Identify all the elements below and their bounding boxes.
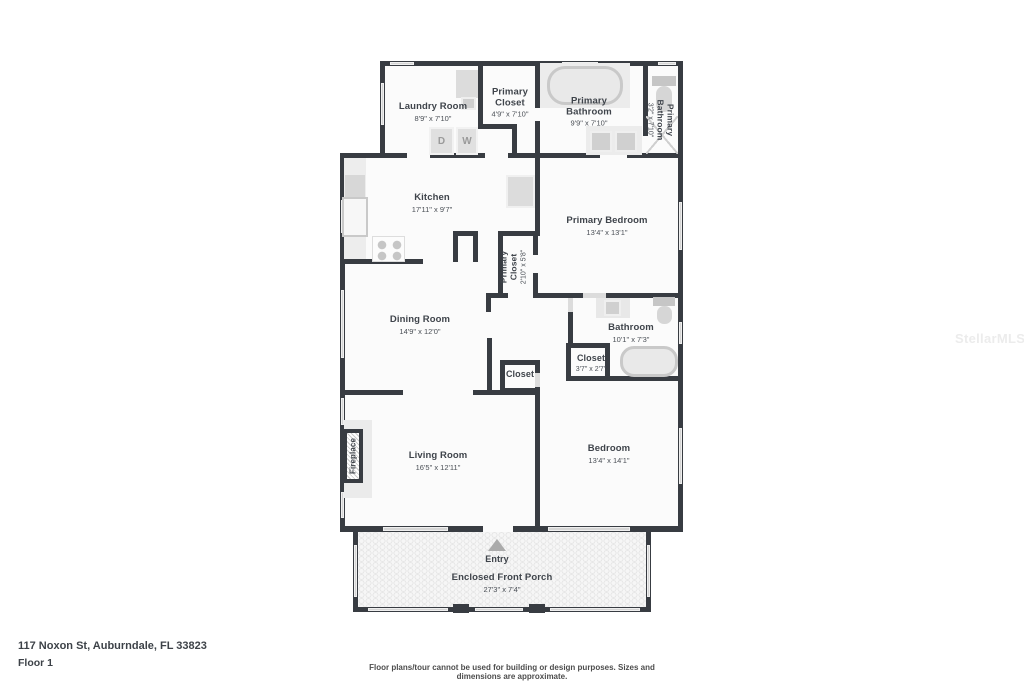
address-text: 117 Noxon St, Auburndale, FL 33823 bbox=[18, 640, 207, 652]
wall bbox=[453, 604, 469, 613]
kitchen-name: Kitchen bbox=[412, 193, 453, 204]
window bbox=[550, 608, 640, 611]
wall bbox=[343, 390, 403, 395]
wall bbox=[533, 236, 538, 255]
laundry-name: Laundry Room bbox=[399, 102, 467, 113]
closet-bath-name: Closet bbox=[576, 353, 607, 364]
wall bbox=[535, 153, 540, 233]
stove-icon bbox=[372, 236, 405, 262]
room-label-bedroom: Bedroom 13'4" x 14'1" bbox=[588, 444, 630, 465]
closet-hall-name: Closet bbox=[506, 369, 534, 380]
washer-label: W bbox=[462, 136, 471, 147]
primary-bedroom-dims: 13'4" x 13'1" bbox=[566, 227, 647, 236]
kitchen-sink-icon bbox=[342, 197, 368, 237]
entry-arrow-icon bbox=[488, 539, 506, 551]
dining-dims: 14'9" x 12'0" bbox=[390, 326, 450, 335]
window bbox=[548, 527, 630, 531]
wall bbox=[529, 604, 545, 613]
bath-tub-icon bbox=[620, 346, 678, 377]
window bbox=[390, 62, 414, 65]
room-label-primary-bathroom: Primary Bathroom 9'9" x 7'10" bbox=[561, 97, 617, 128]
dryer-icon: D bbox=[429, 127, 454, 155]
fireplace-name: Fireplace bbox=[348, 438, 358, 474]
room-label-primary-bedroom: Primary Bedroom 13'4" x 13'1" bbox=[566, 216, 647, 237]
room-label-primary-closet: Primary Closet 4'9" x 7'10" bbox=[484, 88, 536, 119]
primary-sink-1-icon bbox=[590, 131, 612, 152]
kitchen-prep-sink-icon bbox=[345, 175, 365, 197]
wall bbox=[535, 387, 540, 526]
window bbox=[341, 290, 344, 358]
window bbox=[475, 608, 523, 611]
primary-wc-dims: 3'2" x 7'10" bbox=[646, 92, 655, 148]
wall bbox=[500, 360, 540, 365]
kitchen-dims: 17'11" x 9'7" bbox=[412, 204, 453, 213]
room-label-kitchen: Kitchen 17'11" x 9'7" bbox=[412, 193, 453, 214]
hall-primary-closet-dims: 2'10" x 5'8" bbox=[520, 243, 529, 291]
living-name: Living Room bbox=[409, 451, 468, 462]
wall bbox=[487, 338, 492, 393]
wall bbox=[473, 390, 537, 395]
porch-name: Enclosed Front Porch bbox=[452, 573, 553, 584]
window bbox=[679, 202, 682, 250]
bedroom-dims: 13'4" x 14'1" bbox=[588, 455, 630, 464]
entry-doorway bbox=[483, 526, 513, 532]
fireplace-label: Fireplace bbox=[348, 438, 358, 474]
primary-wc-name: Primary Bathroom bbox=[656, 92, 675, 148]
closet-bath-dims: 3'7" x 2'7" bbox=[576, 364, 607, 373]
laundry-dims: 8'9" x 7'10" bbox=[399, 113, 467, 122]
room-label-hall-primary-closet: Primary Closet 2'10" x 5'8" bbox=[500, 243, 529, 291]
wc-toilet-tank-icon bbox=[652, 76, 676, 86]
window bbox=[354, 545, 357, 597]
wall bbox=[478, 61, 483, 127]
wall bbox=[453, 236, 458, 262]
room-label-closet-hall: Closet bbox=[506, 369, 534, 380]
floor-plan: D W Fireplace Laundry Room 8'9" x 7'10" … bbox=[0, 0, 1024, 682]
primary-sink-2-icon bbox=[615, 131, 637, 152]
bathroom-name: Bathroom bbox=[608, 323, 654, 334]
bath-toilet-bowl-icon bbox=[657, 306, 672, 324]
wall bbox=[568, 312, 573, 345]
porch-dims: 27'3" x 7'4" bbox=[452, 584, 553, 593]
primary-closet-dims: 4'9" x 7'10" bbox=[484, 110, 536, 119]
primary-closet-name: Primary Closet bbox=[484, 88, 536, 109]
bath-toilet-tank-icon bbox=[653, 297, 675, 306]
bathroom-dims: 10'1" x 7'3" bbox=[608, 334, 654, 343]
room-label-bathroom: Bathroom 10'1" x 7'3" bbox=[608, 323, 654, 344]
room-label-closet-bath: Closet 3'7" x 2'7" bbox=[576, 353, 607, 374]
wall bbox=[380, 61, 683, 66]
laundry-shelf-icon bbox=[456, 70, 478, 98]
living-dims: 16'5" x 12'11" bbox=[409, 462, 468, 471]
dryer-label: D bbox=[438, 136, 445, 147]
room-label-laundry: Laundry Room 8'9" x 7'10" bbox=[399, 102, 467, 123]
bath-sink-icon bbox=[604, 300, 621, 316]
disclaimer-text: Floor plans/tour cannot be used for buil… bbox=[352, 663, 672, 681]
door-opening bbox=[535, 373, 540, 387]
window bbox=[368, 608, 448, 611]
room-label-dining: Dining Room 14'9" x 12'0" bbox=[390, 315, 450, 336]
room-label-primary-wc: Primary Bathroom 3'2" x 7'10" bbox=[646, 92, 675, 148]
window bbox=[647, 545, 650, 597]
room-label-living: Living Room 16'5" x 12'11" bbox=[409, 451, 468, 472]
window bbox=[383, 527, 448, 531]
floor-label: Floor 1 bbox=[18, 657, 53, 669]
window bbox=[679, 428, 682, 484]
window bbox=[679, 322, 682, 344]
room-label-porch: Enclosed Front Porch 27'3" x 7'4" bbox=[452, 573, 553, 594]
washer-icon: W bbox=[456, 127, 478, 155]
hall-primary-closet-name: Primary Closet bbox=[500, 243, 519, 291]
window bbox=[658, 62, 676, 65]
mls-watermark: StellarMLS bbox=[955, 331, 1024, 346]
wall bbox=[533, 293, 583, 298]
wall bbox=[380, 153, 407, 158]
wall bbox=[473, 236, 478, 262]
primary-bathroom-name: Primary Bathroom bbox=[561, 97, 617, 118]
entry-name: Entry bbox=[485, 554, 509, 565]
fridge-icon bbox=[506, 175, 535, 208]
door-opening bbox=[568, 298, 573, 312]
bedroom-name: Bedroom bbox=[588, 444, 630, 455]
primary-bedroom-name: Primary Bedroom bbox=[566, 216, 647, 227]
room-label-entry: Entry bbox=[485, 554, 509, 565]
wall bbox=[566, 343, 610, 348]
primary-bathroom-dims: 9'9" x 7'10" bbox=[561, 119, 617, 128]
window bbox=[381, 83, 384, 125]
wall bbox=[486, 293, 491, 312]
dining-name: Dining Room bbox=[390, 315, 450, 326]
